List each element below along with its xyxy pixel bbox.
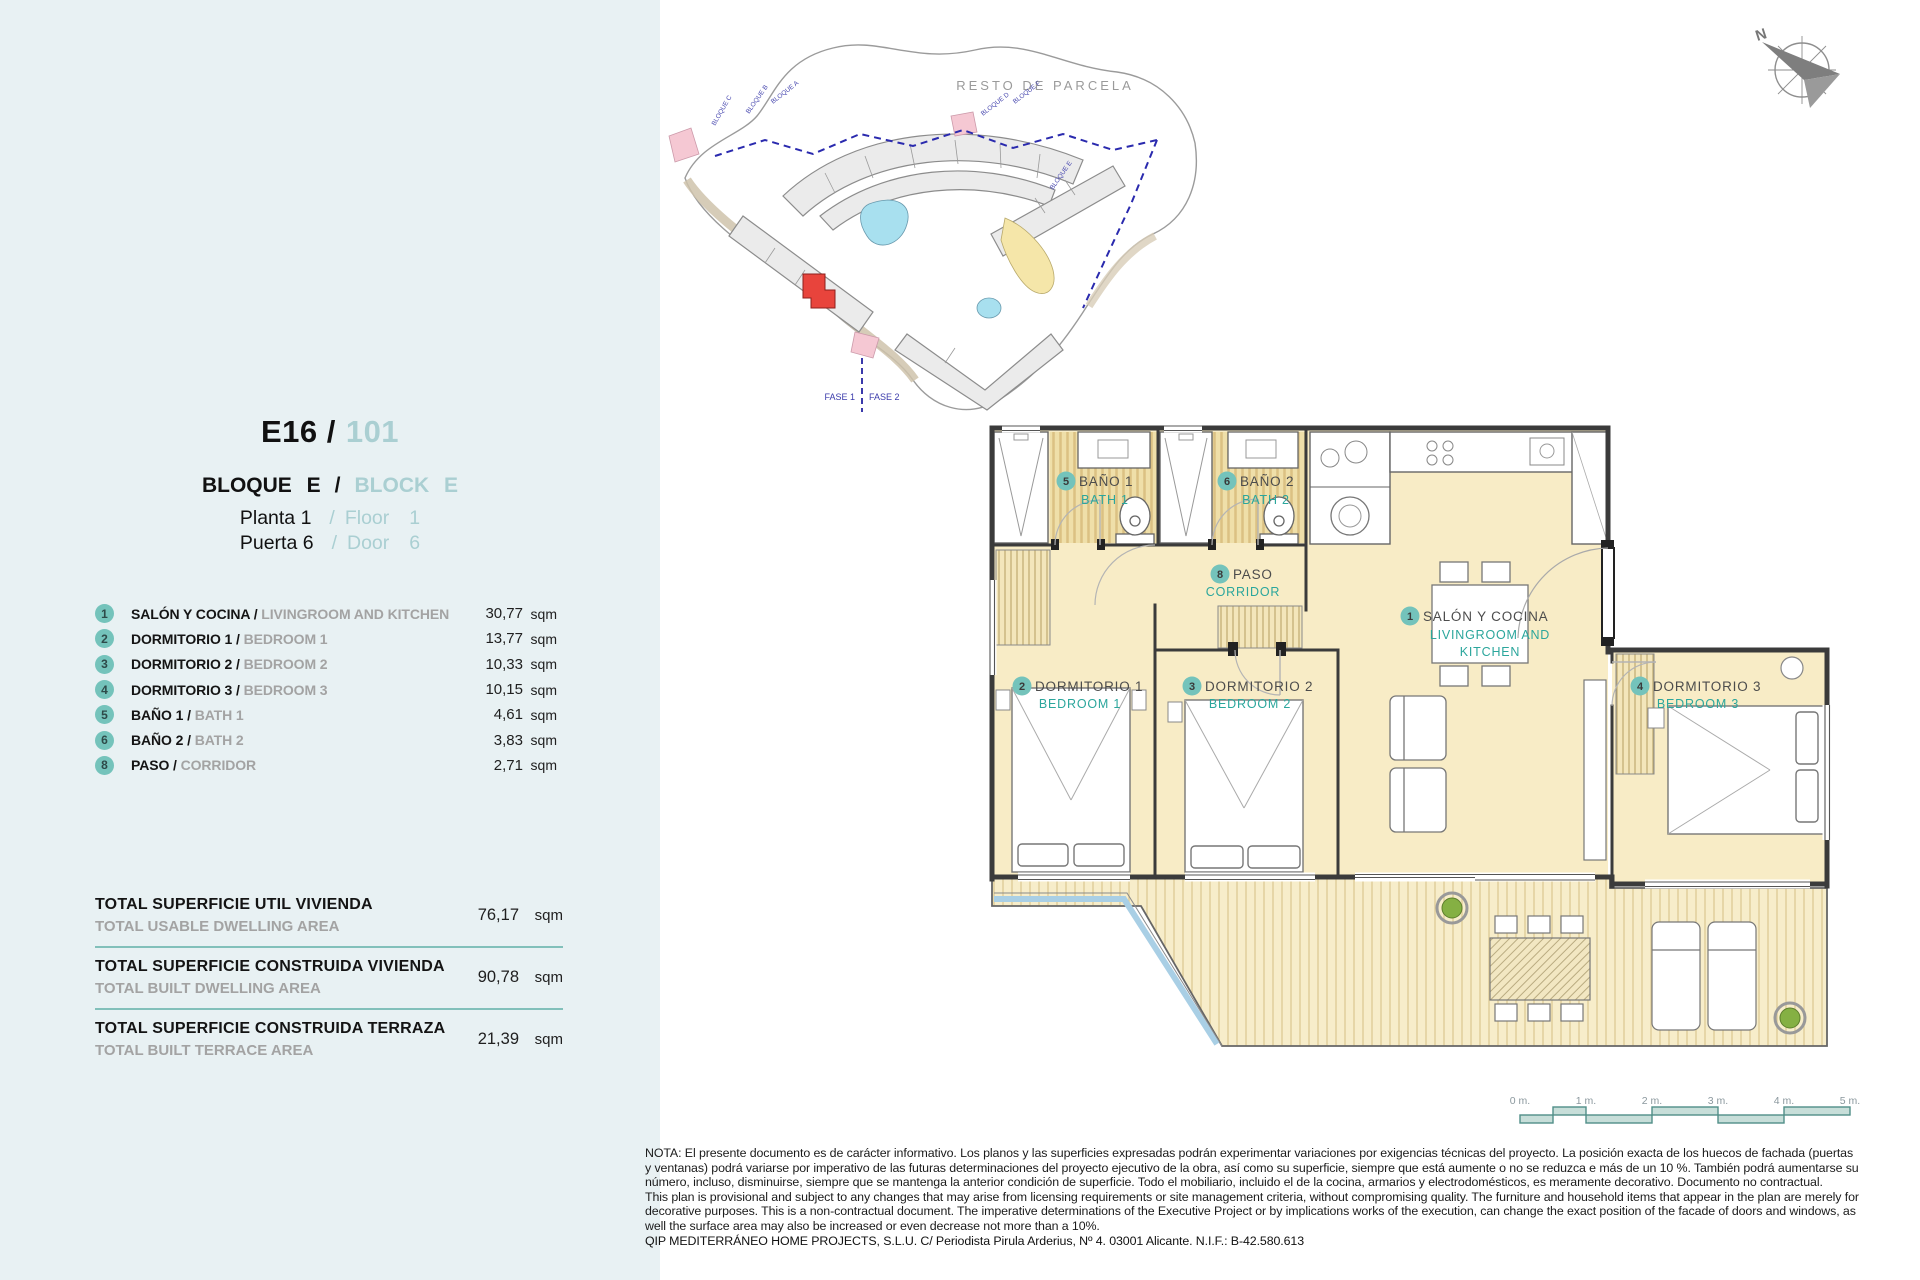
fase2-label: FASE 2 bbox=[869, 392, 900, 402]
svg-text:1 m.: 1 m. bbox=[1576, 1095, 1596, 1107]
company-footer: QIP MEDITERRÁNEO HOME PROJECTS, S.L.U. C… bbox=[645, 1234, 1859, 1249]
room-area-value: 10,33 bbox=[471, 656, 523, 673]
svg-text:5: 5 bbox=[1063, 476, 1069, 488]
svg-text:BAÑO 1: BAÑO 1 bbox=[1079, 474, 1133, 489]
room-row: 5 BAÑO 1 / BATH 1 4,61sqm bbox=[95, 702, 557, 727]
floor-plan: 5 BAÑO 1 BATH 1 6 BAÑO 2 BATH 2 8 PASO C… bbox=[980, 418, 1840, 1078]
room-number-badge: 3 bbox=[95, 655, 114, 674]
room-row: 8 PASO / CORRIDOR 2,71sqm bbox=[95, 753, 557, 778]
block-name-en: BLOCK E bbox=[355, 474, 459, 497]
note-spanish: NOTA: El presente documento es de caráct… bbox=[645, 1146, 1859, 1190]
corridor-label: 8 PASO CORRIDOR bbox=[1206, 565, 1280, 600]
room-area-value: 30,77 bbox=[471, 605, 523, 622]
svg-text:LIVINGROOM AND: LIVINGROOM AND bbox=[1430, 628, 1550, 642]
total-built-area: TOTAL SUPERFICIE CONSTRUIDA VIVIENDA TOT… bbox=[95, 948, 563, 1008]
north-label: N bbox=[1753, 25, 1769, 45]
svg-text:BATH 1: BATH 1 bbox=[1081, 493, 1129, 507]
site-plan: RESTO DE PARCELA BLOQUE A BLOQUE B BLOQU… bbox=[655, 8, 1215, 423]
total-terrace-area: TOTAL SUPERFICIE CONSTRUIDA TERRAZA TOTA… bbox=[95, 1010, 563, 1070]
svg-text:BEDROOM 1: BEDROOM 1 bbox=[1039, 697, 1121, 711]
door-en: Door bbox=[347, 532, 389, 554]
svg-text:6: 6 bbox=[1224, 476, 1230, 488]
svg-text:5 m.: 5 m. bbox=[1840, 1095, 1860, 1107]
svg-text:2 m.: 2 m. bbox=[1642, 1095, 1662, 1107]
svg-text:BEDROOM 2: BEDROOM 2 bbox=[1209, 697, 1291, 711]
svg-text:KITCHEN: KITCHEN bbox=[1460, 645, 1520, 659]
svg-text:BAÑO 2: BAÑO 2 bbox=[1240, 474, 1294, 489]
compass-icon: N bbox=[1748, 14, 1852, 118]
scale-bar: 0 m. 1 m. 2 m. 3 m. 4 m. 5 m. bbox=[1498, 1094, 1878, 1136]
svg-text:DORMITORIO 3: DORMITORIO 3 bbox=[1653, 679, 1761, 694]
room-number-badge: 4 bbox=[95, 680, 114, 699]
room-area-value: 3,83 bbox=[471, 732, 523, 749]
unit-header: E16 /101 BLOQUE E/BLOCK E Planta 1/Floor… bbox=[35, 414, 625, 555]
svg-text:1: 1 bbox=[1407, 611, 1413, 623]
svg-text:BATH 2: BATH 2 bbox=[1242, 493, 1290, 507]
room-row: 4 DORMITORIO 3 / BEDROOM 3 10,15sqm bbox=[95, 677, 557, 702]
floor-line: Planta 1/Floor1 bbox=[35, 507, 625, 530]
floor-en: Floor bbox=[345, 507, 389, 529]
door-es: Puerta 6 bbox=[240, 532, 314, 554]
info-sidebar: E16 /101 BLOQUE E/BLOCK E Planta 1/Floor… bbox=[0, 0, 660, 1280]
svg-text:8: 8 bbox=[1217, 569, 1223, 581]
room-area-value: 2,71 bbox=[471, 757, 523, 774]
totals-section: TOTAL SUPERFICIE UTIL VIVIENDA TOTAL USA… bbox=[95, 886, 563, 1070]
block-line: BLOQUE E/BLOCK E bbox=[35, 474, 625, 498]
svg-text:0 m.: 0 m. bbox=[1510, 1095, 1530, 1107]
fase1-label: FASE 1 bbox=[824, 392, 855, 402]
door-line: Puerta 6/Door6 bbox=[35, 532, 625, 555]
svg-text:SALÓN Y COCINA: SALÓN Y COCINA bbox=[1423, 609, 1549, 624]
svg-text:BEDROOM 3: BEDROOM 3 bbox=[1657, 697, 1739, 711]
room-area-list: 1 SALÓN Y COCINA / LIVINGROOM AND KITCHE… bbox=[95, 601, 557, 778]
room-number-badge: 2 bbox=[95, 629, 114, 648]
room-row: 1 SALÓN Y COCINA / LIVINGROOM AND KITCHE… bbox=[95, 601, 557, 626]
lamp-icon bbox=[1781, 657, 1803, 679]
room-area-value: 10,15 bbox=[471, 681, 523, 698]
unit-title: E16 /101 bbox=[35, 414, 625, 450]
block-name-es: BLOQUE E bbox=[202, 474, 321, 497]
room-row: 3 DORMITORIO 2 / BEDROOM 2 10,33sqm bbox=[95, 652, 557, 677]
unit-code: E16 / bbox=[261, 414, 336, 449]
room-number-badge: 8 bbox=[95, 756, 114, 775]
room-number-badge: 5 bbox=[95, 705, 114, 724]
sliding-door bbox=[1355, 873, 1595, 882]
room-area-value: 4,61 bbox=[471, 706, 523, 723]
tv-unit-icon bbox=[1584, 680, 1606, 860]
floor-es: Planta 1 bbox=[240, 507, 312, 529]
svg-text:4: 4 bbox=[1637, 681, 1644, 693]
scale-labels: 0 m. 1 m. 2 m. 3 m. 4 m. 5 m. bbox=[1510, 1095, 1860, 1107]
terrace bbox=[992, 877, 1827, 1046]
resto-parcela-label: RESTO DE PARCELA bbox=[956, 78, 1134, 93]
note-english: This plan is provisional and subject to … bbox=[645, 1190, 1859, 1234]
svg-text:PASO: PASO bbox=[1233, 567, 1273, 582]
room-number-badge: 1 bbox=[95, 604, 114, 623]
svg-text:DORMITORIO 2: DORMITORIO 2 bbox=[1205, 679, 1313, 694]
total-usable-area: TOTAL SUPERFICIE UTIL VIVIENDA TOTAL USA… bbox=[95, 886, 563, 946]
svg-text:BLOQUE C: BLOQUE C bbox=[711, 94, 734, 127]
svg-text:DORMITORIO 1: DORMITORIO 1 bbox=[1035, 679, 1143, 694]
svg-text:3 m.: 3 m. bbox=[1708, 1095, 1728, 1107]
svg-text:2: 2 bbox=[1019, 681, 1025, 693]
legal-notes: NOTA: El presente documento es de caráct… bbox=[645, 1146, 1859, 1248]
svg-text:4 m.: 4 m. bbox=[1774, 1095, 1794, 1107]
unit-number: 101 bbox=[346, 414, 399, 449]
room-area-value: 13,77 bbox=[471, 630, 523, 647]
total-value: 21,39 bbox=[461, 1030, 519, 1049]
svg-text:3: 3 bbox=[1189, 681, 1195, 693]
room-number-badge: 6 bbox=[95, 731, 114, 750]
svg-text:CORRIDOR: CORRIDOR bbox=[1206, 585, 1280, 599]
room-row: 2 DORMITORIO 1 / BEDROOM 1 13,77sqm bbox=[95, 626, 557, 651]
parcel-outline bbox=[685, 45, 1196, 410]
total-value: 76,17 bbox=[461, 906, 519, 925]
total-value: 90,78 bbox=[461, 968, 519, 987]
room-row: 6 BAÑO 2 / BATH 2 3,83sqm bbox=[95, 727, 557, 752]
terrace-dining-set bbox=[1490, 916, 1590, 1021]
